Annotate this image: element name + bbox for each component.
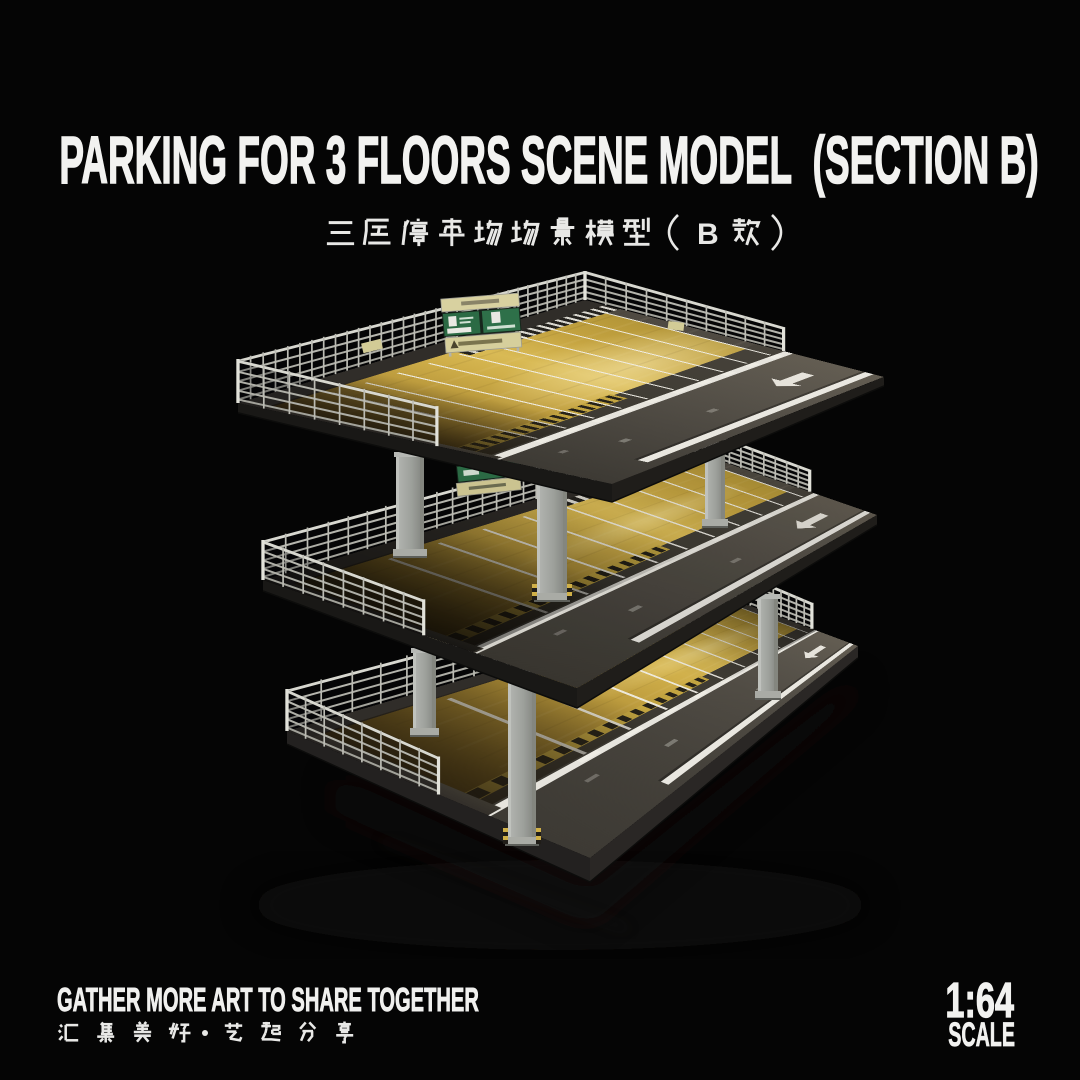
svg-text:SCALE: SCALE — [948, 1015, 1015, 1053]
svg-text:GATHER MORE ART TO SHARE TOGET: GATHER MORE ART TO SHARE TOGETHER — [57, 981, 479, 1019]
svg-text:B: B — [697, 218, 719, 251]
svg-text:PARKING FOR 3 FLOORS SCENE MOD: PARKING FOR 3 FLOORS SCENE MODEL (SECTIO… — [59, 124, 1038, 198]
